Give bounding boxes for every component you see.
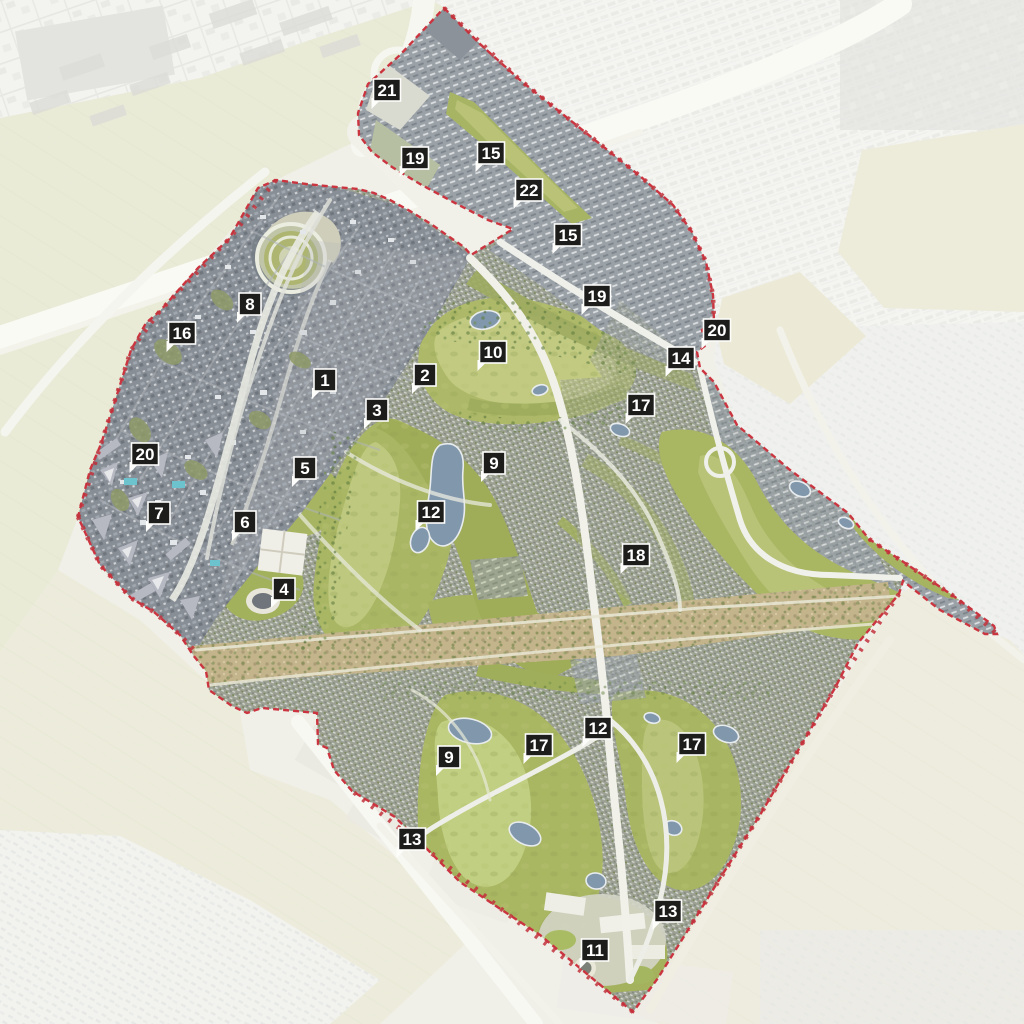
svg-text:20: 20 — [708, 321, 727, 340]
svg-text:9: 9 — [444, 748, 453, 767]
svg-text:14: 14 — [672, 349, 691, 368]
svg-text:17: 17 — [632, 396, 651, 415]
svg-text:5: 5 — [300, 459, 309, 478]
svg-text:16: 16 — [173, 324, 192, 343]
svg-text:6: 6 — [240, 513, 249, 532]
svg-text:3: 3 — [372, 401, 381, 420]
svg-text:7: 7 — [154, 504, 163, 523]
svg-text:17: 17 — [530, 736, 549, 755]
svg-text:18: 18 — [627, 546, 646, 565]
svg-text:10: 10 — [484, 343, 503, 362]
svg-text:1: 1 — [320, 371, 329, 390]
svg-text:12: 12 — [422, 503, 441, 522]
svg-text:4: 4 — [279, 580, 289, 599]
svg-text:13: 13 — [403, 830, 422, 849]
svg-text:13: 13 — [659, 902, 678, 921]
svg-text:15: 15 — [559, 226, 578, 245]
svg-text:9: 9 — [489, 454, 498, 473]
svg-text:15: 15 — [482, 144, 501, 163]
svg-text:8: 8 — [245, 295, 254, 314]
svg-text:2: 2 — [420, 366, 429, 385]
svg-text:22: 22 — [520, 181, 539, 200]
svg-text:19: 19 — [588, 287, 607, 306]
svg-text:12: 12 — [589, 719, 608, 738]
svg-text:11: 11 — [586, 941, 604, 960]
svg-text:17: 17 — [683, 735, 702, 754]
svg-text:21: 21 — [378, 81, 397, 100]
svg-text:20: 20 — [136, 445, 155, 464]
svg-text:19: 19 — [406, 149, 425, 168]
